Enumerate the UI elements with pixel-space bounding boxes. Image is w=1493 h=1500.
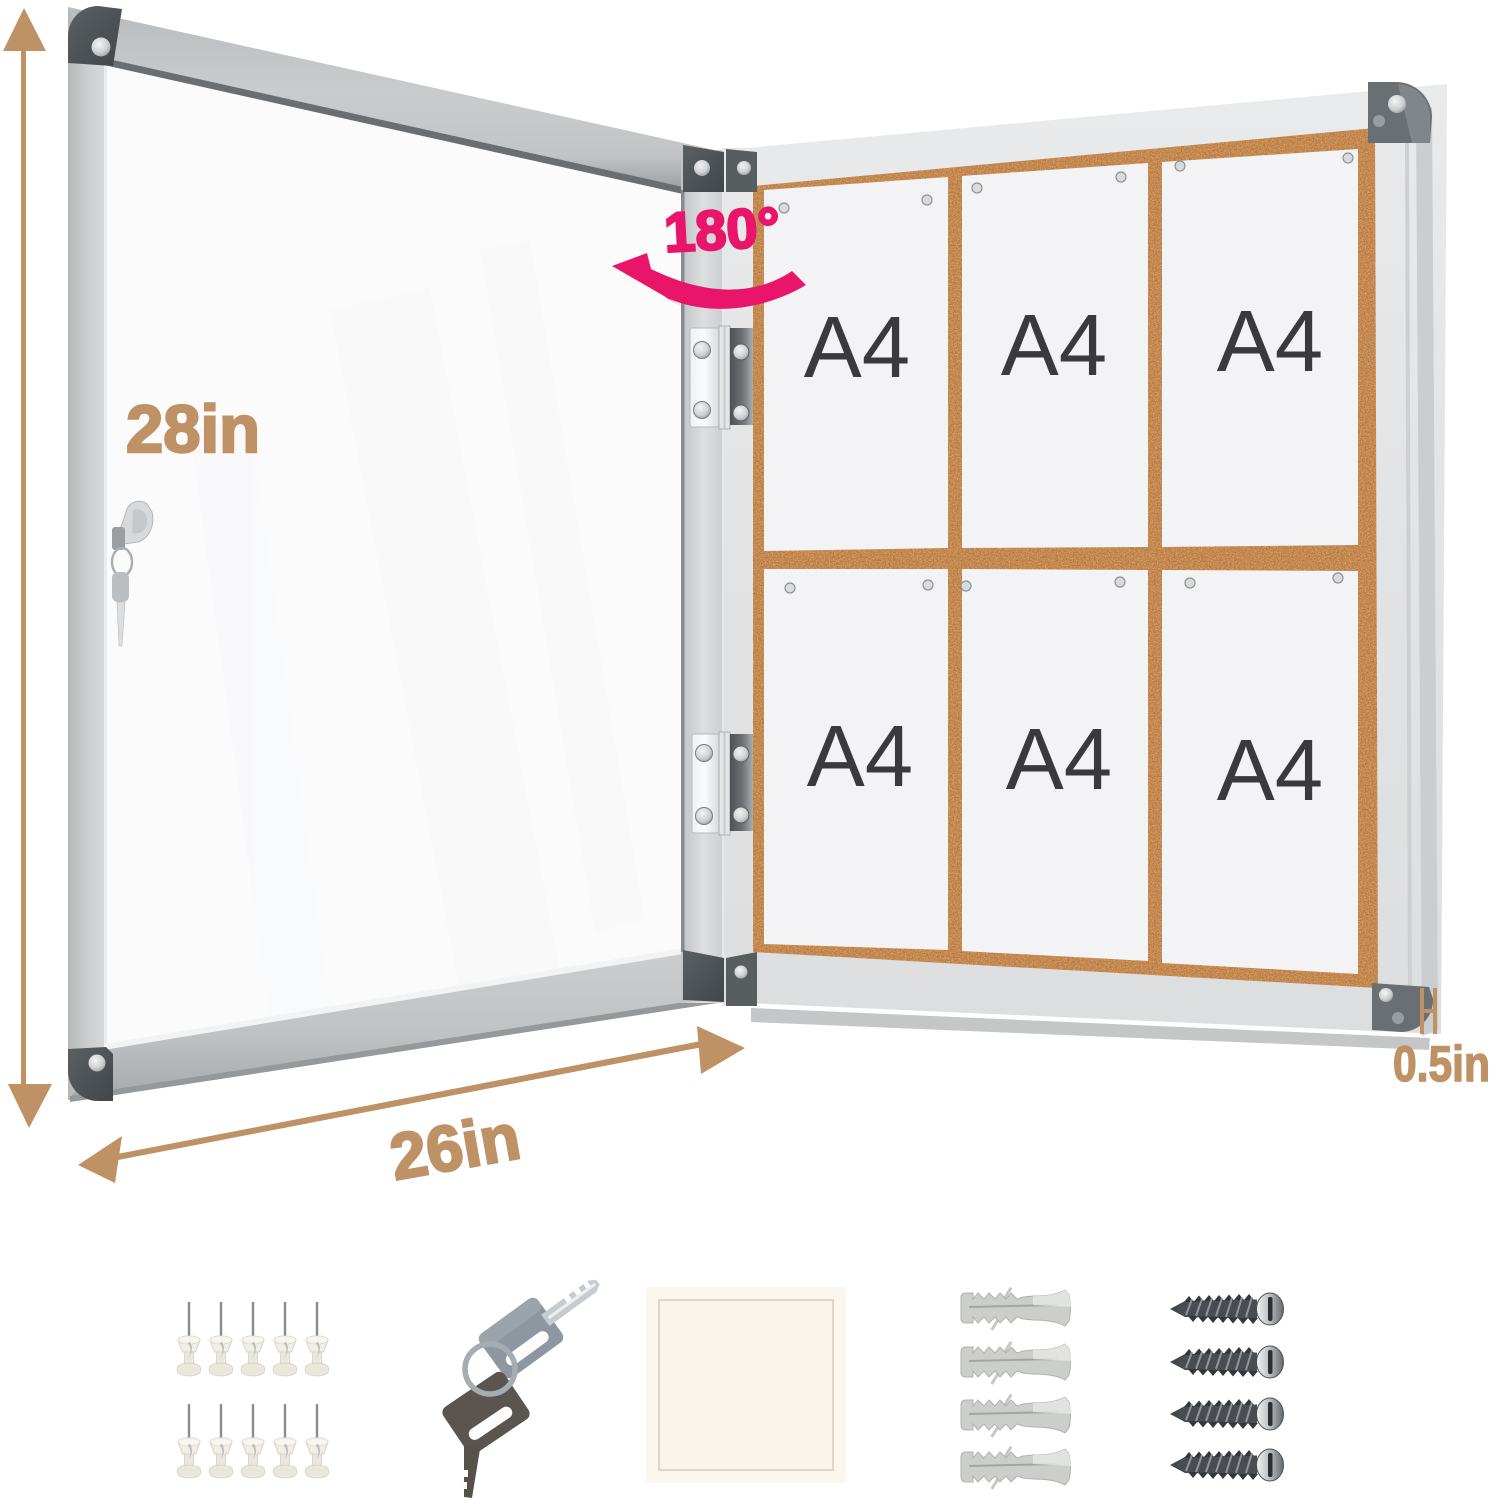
svg-text:A4: A4 — [1006, 711, 1112, 808]
svg-text:A4: A4 — [1217, 293, 1323, 390]
svg-text:A4: A4 — [807, 708, 913, 805]
svg-text:26in: 26in — [385, 1099, 526, 1193]
svg-text:A4: A4 — [804, 299, 910, 396]
svg-text:0.5in: 0.5in — [1393, 1036, 1490, 1092]
svg-text:A4: A4 — [1001, 297, 1107, 394]
svg-text:A4: A4 — [1217, 722, 1323, 819]
svg-text:28in: 28in — [126, 392, 260, 467]
svg-text:180°: 180° — [662, 195, 781, 264]
